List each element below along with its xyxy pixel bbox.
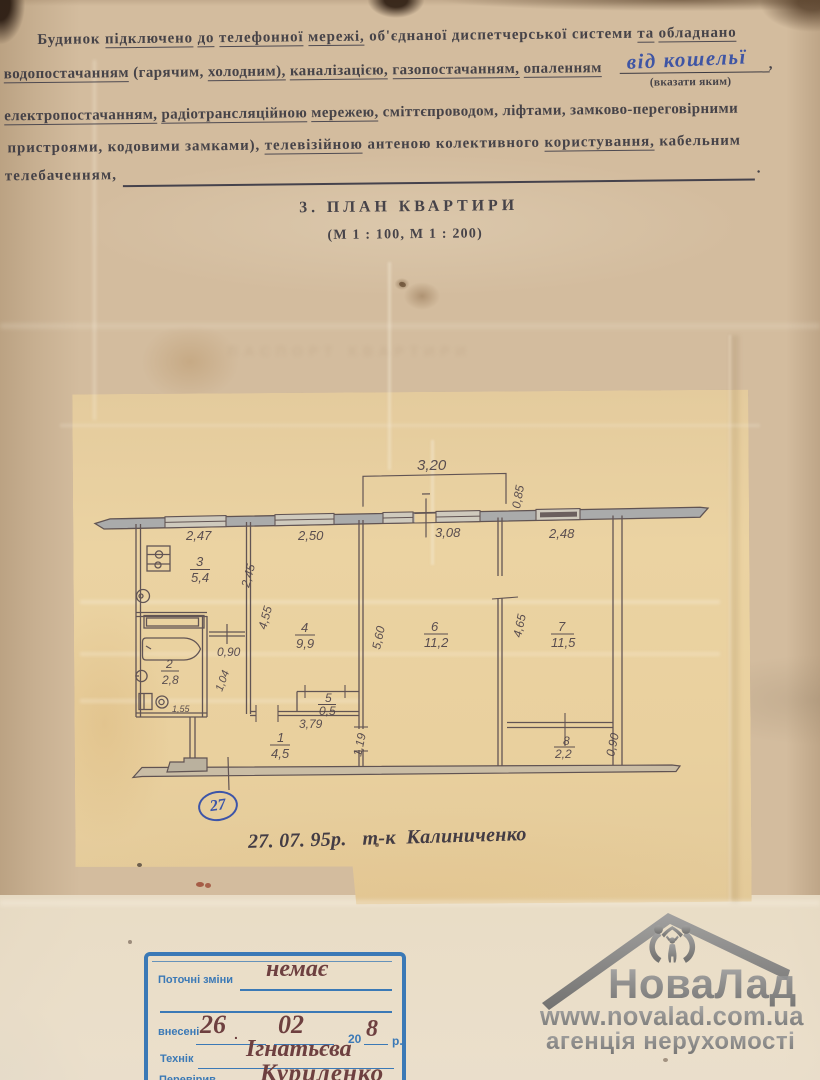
svg-text:1,19: 1,19 [350,732,369,758]
svg-text:0,85: 0,85 [509,484,527,510]
svg-text:2,50: 2,50 [297,528,324,543]
svg-text:2,47: 2,47 [185,528,212,543]
svg-text:5: 5 [325,691,332,705]
svg-text:11,5: 11,5 [551,635,576,650]
svg-text:5,4: 5,4 [191,570,209,585]
svg-text:3,20: 3,20 [417,457,447,474]
svg-text:7: 7 [558,619,566,634]
svg-text:9,9: 9,9 [296,636,314,651]
svg-text:4: 4 [301,620,308,635]
svg-text:2,8: 2,8 [161,673,179,687]
svg-text:6: 6 [431,619,439,634]
svg-text:8: 8 [563,734,570,748]
svg-text:агенція нерухомості: агенція нерухомості [546,1028,795,1055]
svg-text:4,55: 4,55 [255,604,275,630]
svg-text:11,2: 11,2 [424,635,449,650]
svg-text:0,90: 0,90 [217,645,241,659]
svg-text:0,5: 0,5 [319,704,336,718]
svg-text:0,90: 0,90 [603,732,622,758]
svg-text:НоваЛад: НоваЛад [608,960,797,1007]
svg-text:2,45: 2,45 [238,562,258,589]
svg-text:3: 3 [196,554,204,569]
svg-text:4,65: 4,65 [510,613,529,639]
svg-text:5,60: 5,60 [369,625,388,651]
svg-text:1: 1 [277,730,284,745]
svg-text:2,2: 2,2 [554,747,572,761]
svg-text:2: 2 [165,657,173,671]
svg-text:2,48: 2,48 [548,526,575,541]
svg-text:1,55: 1,55 [172,704,191,714]
svg-text:3,79: 3,79 [299,717,323,731]
svg-text:4,5: 4,5 [271,746,290,761]
svg-text:3,08: 3,08 [435,525,461,540]
svg-text:www.novalad.com.ua: www.novalad.com.ua [539,1003,804,1031]
svg-text:1,04: 1,04 [214,669,233,693]
